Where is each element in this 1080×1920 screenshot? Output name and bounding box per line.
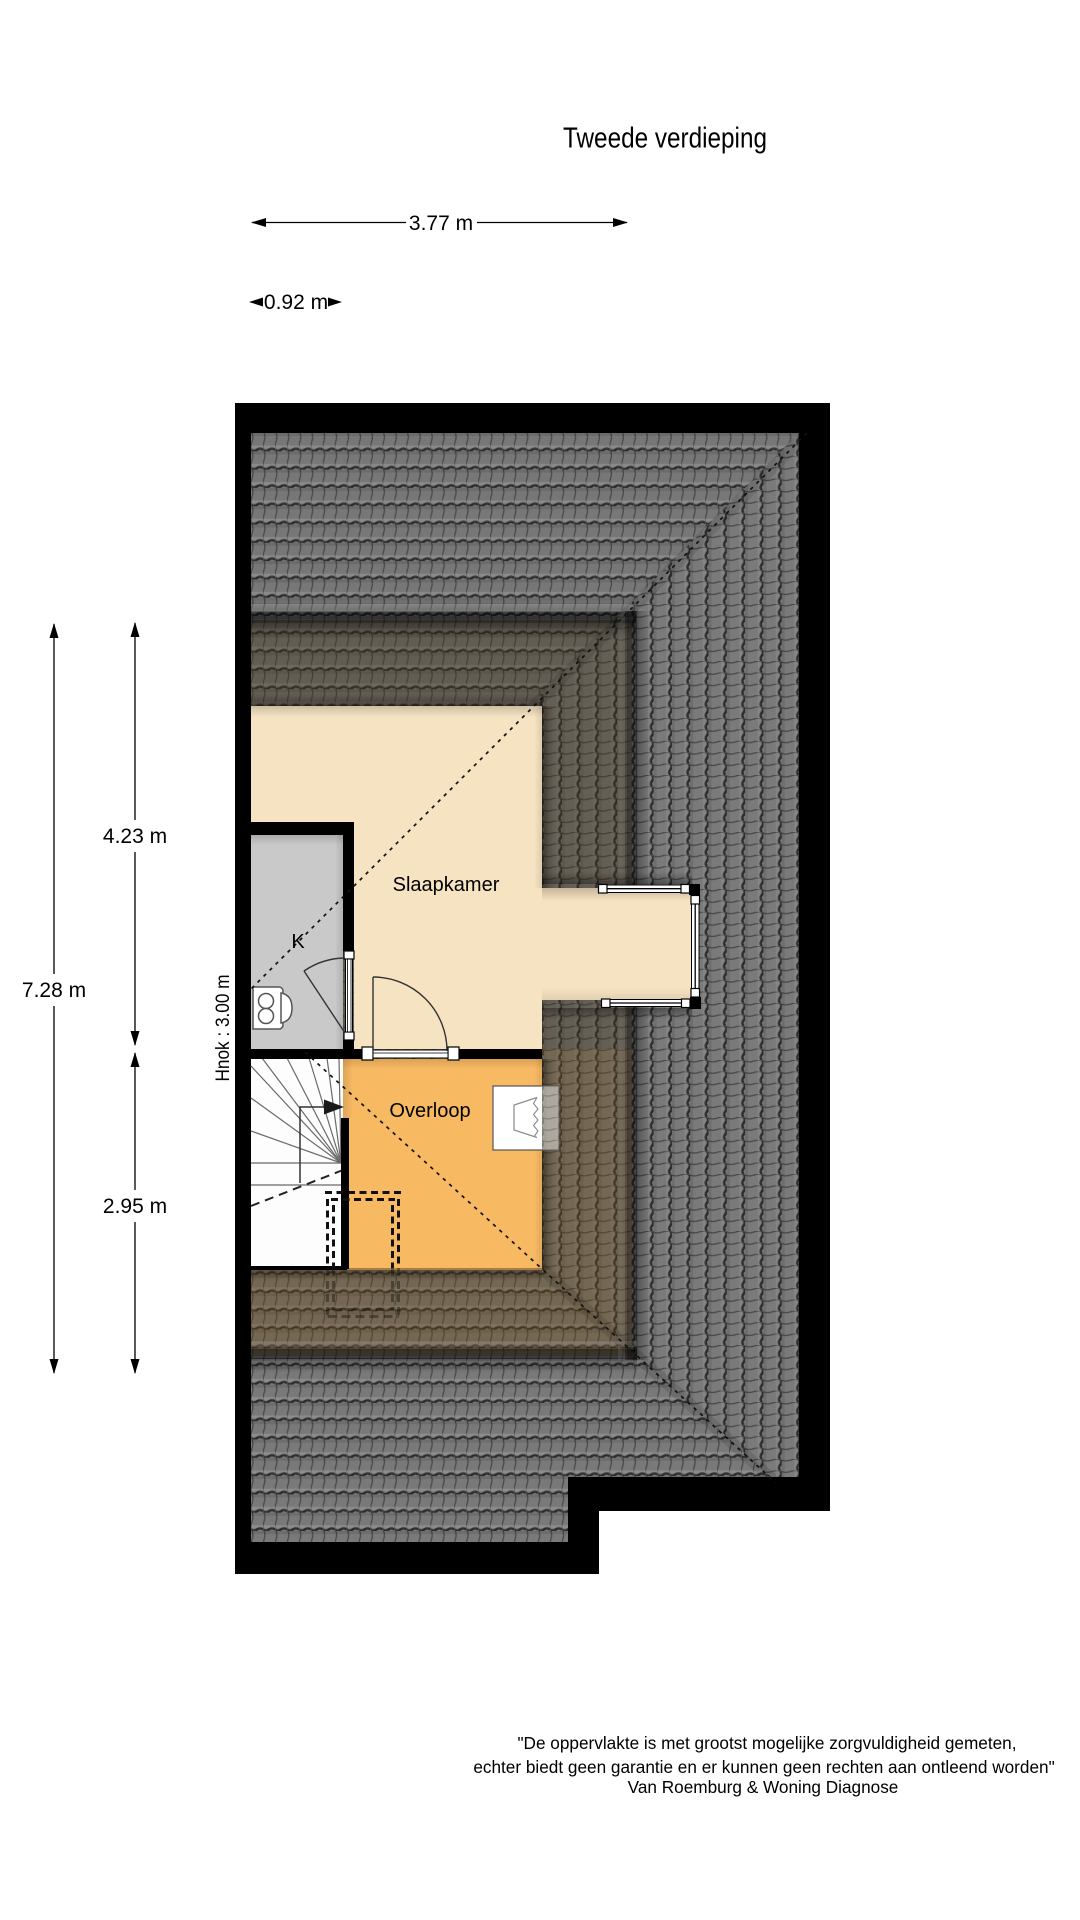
svg-text:Hnok : 3.00 m: Hnok : 3.00 m	[213, 975, 234, 1082]
svg-text:3.77 m: 3.77 m	[409, 212, 473, 235]
svg-text:"De oppervlakte is met grootst: "De oppervlakte is met grootst mogelijke…	[517, 1733, 1016, 1753]
svg-text:Tweede verdieping: Tweede verdieping	[563, 123, 767, 155]
svg-text:7.28 m: 7.28 m	[22, 979, 86, 1002]
svg-text:echter biedt geen garantie en: echter biedt geen garantie en er kunnen …	[473, 1757, 1054, 1777]
svg-text:4.23 m: 4.23 m	[103, 825, 167, 848]
svg-text:Slaapkamer: Slaapkamer	[393, 874, 500, 896]
svg-text:0.92 m: 0.92 m	[264, 291, 328, 314]
svg-text:Van Roemburg & Woning Diagnose: Van Roemburg & Woning Diagnose	[628, 1777, 899, 1797]
svg-text:K: K	[291, 931, 305, 953]
svg-text:2.95 m: 2.95 m	[103, 1195, 167, 1218]
svg-text:Overloop: Overloop	[389, 1100, 470, 1122]
